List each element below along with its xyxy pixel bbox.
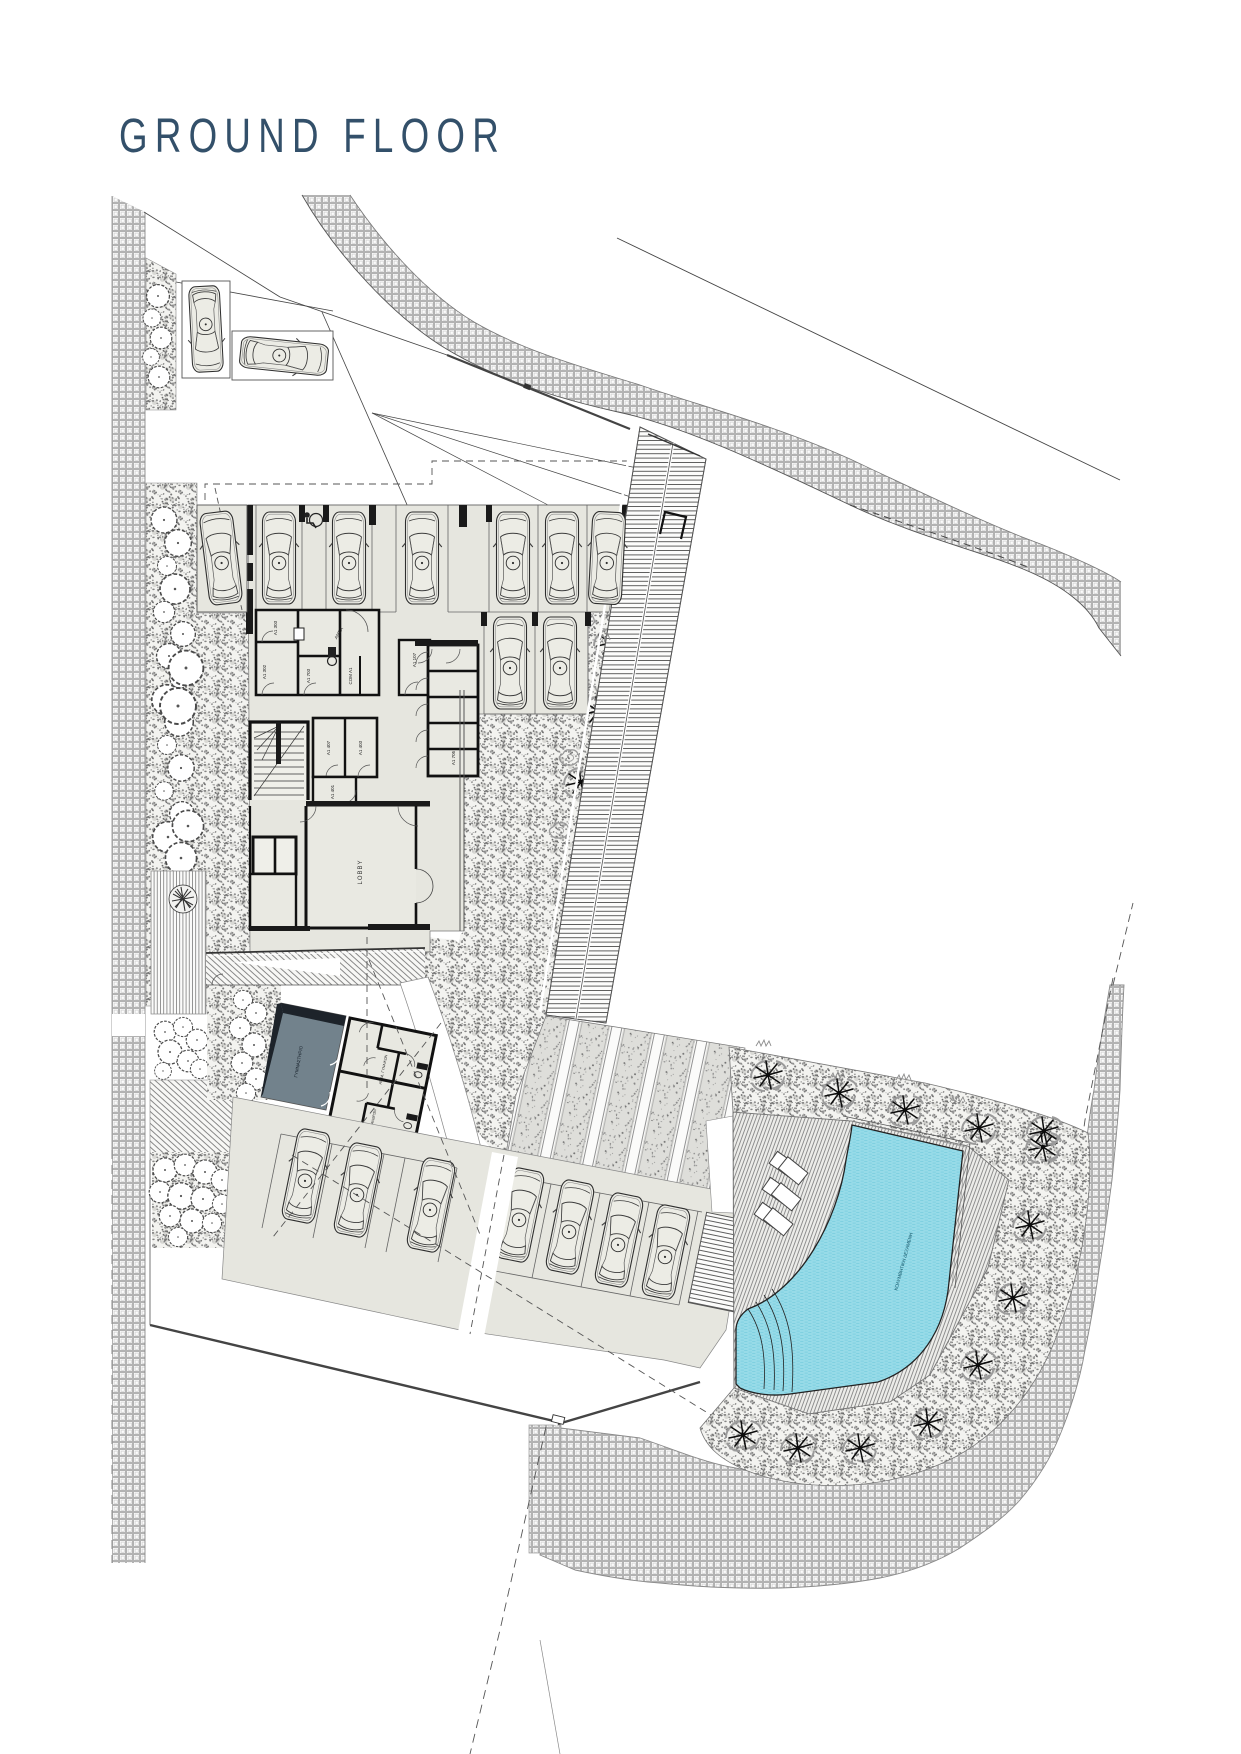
- svg-text:A1 705: A1 705: [451, 750, 456, 765]
- svg-text:A1 401: A1 401: [330, 784, 335, 799]
- svg-text:GROUND FLOOR: GROUND FLOOR: [119, 109, 506, 163]
- svg-text:COM A1: COM A1: [348, 667, 353, 685]
- svg-text:LOBBY: LOBBY: [358, 859, 364, 884]
- svg-text:A1 403: A1 403: [358, 740, 363, 755]
- svg-text:A1 407: A1 407: [326, 740, 331, 755]
- svg-text:A1 302: A1 302: [262, 664, 267, 679]
- svg-text:A1 703: A1 703: [306, 668, 311, 683]
- svg-text:A1 303: A1 303: [273, 620, 278, 635]
- svg-text:A1 107: A1 107: [412, 652, 417, 667]
